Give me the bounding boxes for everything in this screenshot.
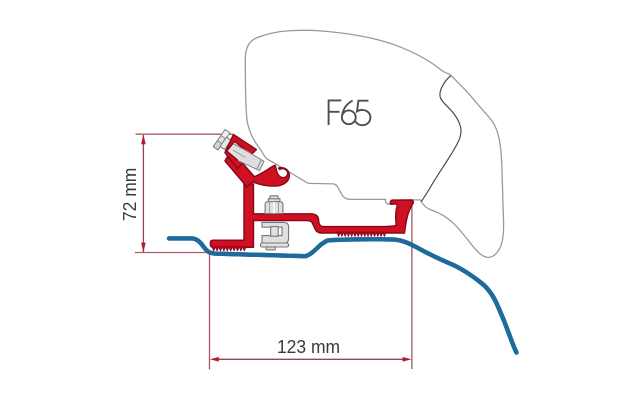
svg-text:123 mm: 123 mm	[277, 337, 340, 358]
svg-text:72 mm: 72 mm	[119, 168, 140, 221]
